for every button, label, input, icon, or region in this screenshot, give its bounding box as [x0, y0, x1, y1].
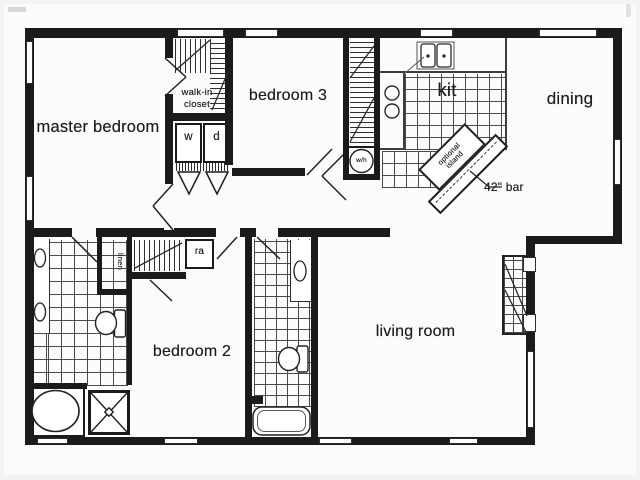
bifold-door-icon — [178, 172, 228, 194]
range-icon — [385, 86, 399, 118]
room-label-bedroom2: bedroom 2 — [130, 343, 254, 361]
room-label-living-room: living room — [343, 323, 488, 341]
room-label-kitchen: kit — [417, 79, 477, 101]
shower-icon — [91, 393, 127, 432]
bathtub-icon — [253, 407, 310, 435]
fixture-label-return-air: ra — [185, 246, 214, 257]
fixture-label-dryer: d — [203, 131, 230, 143]
toilet-icon — [96, 310, 309, 372]
room-label-master-bedroom: master bedroom — [28, 118, 168, 137]
fixture-label-washer: w — [175, 131, 202, 143]
floor-plan: optional island — [0, 0, 640, 480]
room-label-walkin-closet: walk-in closet — [171, 87, 223, 110]
room-label-dining: dining — [520, 89, 620, 109]
walkin-line2: closet — [171, 99, 223, 111]
fixture-label-bar: 42" bar — [484, 180, 534, 194]
room-label-bedroom3: bedroom 3 — [232, 87, 344, 105]
garden-tub-icon — [32, 391, 79, 432]
fixture-label-water-heater: w/h — [346, 157, 377, 164]
walkin-line1: walk-in — [171, 87, 223, 99]
fixture-label-linen: linen — [111, 243, 125, 279]
sink-icon — [35, 249, 307, 321]
kitchen-sink-icon — [404, 42, 454, 74]
